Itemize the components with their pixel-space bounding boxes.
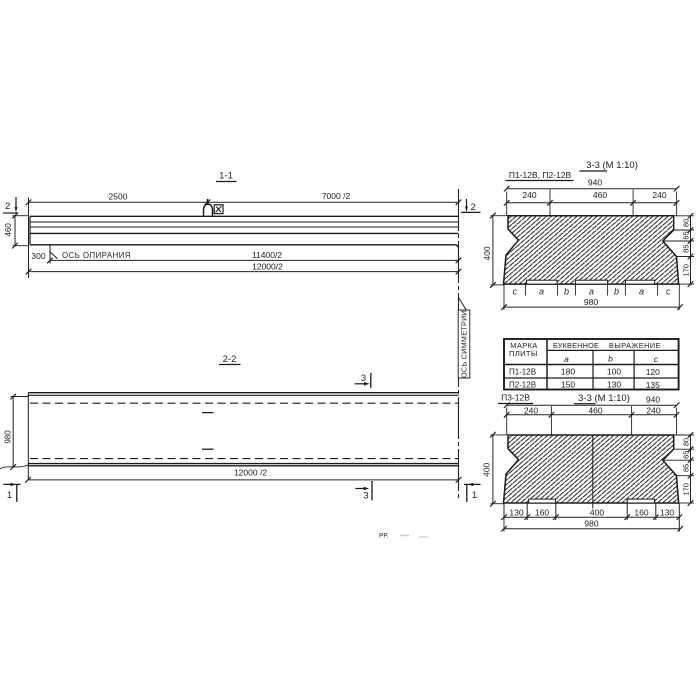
svg-text:980: 980: [584, 518, 598, 528]
svg-text:240: 240: [522, 190, 536, 200]
svg-text:180: 180: [561, 367, 575, 377]
svg-text:170: 170: [681, 264, 690, 277]
svg-text:12000/2: 12000/2: [252, 261, 283, 271]
svg-text:460: 460: [593, 190, 607, 200]
svg-text:160: 160: [634, 508, 648, 518]
svg-text:3-3 (М 1:10): 3-3 (М 1:10): [586, 160, 638, 171]
svg-text:П3-12В: П3-12В: [501, 393, 530, 403]
svg-text:65: 65: [681, 231, 690, 239]
svg-text:a: a: [564, 354, 569, 364]
svg-text:ОСЬ ОПИРАНИЯ: ОСЬ ОПИРАНИЯ: [62, 251, 131, 260]
svg-text:b: b: [614, 287, 619, 297]
svg-text:120: 120: [646, 367, 660, 377]
svg-text:2500: 2500: [109, 192, 128, 202]
svg-text:65: 65: [681, 451, 690, 459]
svg-text:2-2: 2-2: [223, 354, 237, 365]
svg-text:a: a: [639, 287, 644, 297]
svg-text:a: a: [589, 287, 594, 297]
svg-text:130: 130: [660, 508, 674, 518]
svg-text:П2-12В: П2-12В: [509, 381, 536, 390]
svg-text:400: 400: [590, 508, 604, 518]
svg-text:980: 980: [584, 297, 598, 307]
svg-text:460: 460: [4, 223, 13, 237]
svg-text:c: c: [512, 287, 517, 297]
svg-text:80: 80: [681, 219, 690, 227]
svg-text:130: 130: [509, 508, 523, 518]
svg-text:7000 /2: 7000 /2: [322, 191, 351, 201]
svg-text:ПЛИТЫ: ПЛИТЫ: [509, 349, 538, 358]
svg-text:БУКВЕННОЕ: БУКВЕННОЕ: [553, 341, 599, 350]
svg-text:ОСЬ СИММЕТРИИ: ОСЬ СИММЕТРИИ: [459, 310, 468, 378]
svg-text:85: 85: [681, 245, 690, 253]
svg-text:1: 1: [472, 490, 477, 501]
svg-text:a: a: [539, 287, 544, 297]
svg-text:3-3 (М 1:10): 3-3 (М 1:10): [578, 393, 630, 404]
svg-text:130: 130: [607, 380, 621, 390]
svg-text:940: 940: [646, 394, 660, 404]
svg-text:ВЫРАЖЕНИЕ: ВЫРАЖЕНИЕ: [609, 341, 661, 350]
svg-text:1: 1: [7, 490, 12, 501]
svg-text:170: 170: [681, 483, 690, 496]
svg-text:РР.: РР.: [379, 533, 388, 540]
svg-text:135: 135: [646, 380, 660, 390]
svg-text:980: 980: [4, 430, 13, 444]
svg-text:b: b: [608, 354, 613, 364]
svg-text:240: 240: [652, 190, 666, 200]
svg-text:11400/2: 11400/2: [252, 250, 282, 260]
svg-text:12000 /2: 12000 /2: [234, 467, 267, 477]
svg-text:П1-12В: П1-12В: [509, 368, 536, 377]
svg-text:c: c: [666, 287, 671, 297]
svg-text:460: 460: [588, 405, 602, 415]
svg-text:b: b: [564, 287, 569, 297]
svg-text:400: 400: [482, 246, 492, 260]
svg-text:150: 150: [561, 380, 575, 390]
svg-text:3: 3: [361, 373, 366, 384]
svg-text:240: 240: [646, 405, 660, 415]
svg-text:П1-12В, П2-12В: П1-12В, П2-12В: [509, 170, 572, 180]
svg-text:2: 2: [5, 201, 10, 212]
svg-text:85: 85: [681, 464, 690, 472]
svg-text:940: 940: [588, 177, 602, 187]
svg-text:160: 160: [535, 508, 549, 518]
svg-text:400: 400: [482, 462, 492, 476]
svg-text:3: 3: [363, 491, 368, 502]
svg-text:80: 80: [681, 438, 690, 446]
svg-text:100: 100: [607, 367, 621, 377]
svg-text:1-1: 1-1: [219, 171, 233, 182]
svg-text:2: 2: [471, 202, 476, 213]
svg-text:300: 300: [31, 251, 45, 261]
svg-text:240: 240: [524, 405, 538, 415]
